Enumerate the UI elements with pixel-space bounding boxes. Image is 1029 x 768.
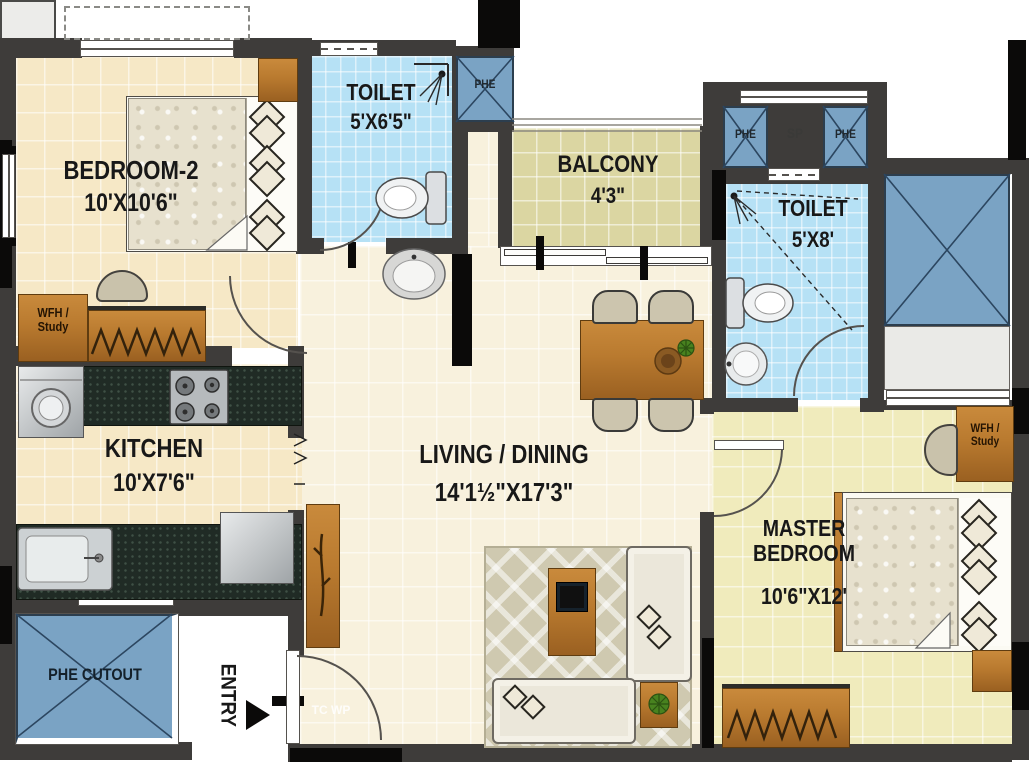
wall-segment-black: [478, 0, 520, 48]
wfh-line: WFH /: [971, 421, 1000, 435]
wall-segment: [234, 38, 312, 58]
wfh-study-label-bedroom2: WFH / Study: [25, 306, 81, 334]
wall-segment: [386, 238, 468, 254]
wall-segment: [0, 742, 192, 760]
phe-shaft-label: PHE: [460, 78, 509, 91]
window-tick: [0, 146, 16, 154]
phe-cutout-label: PHE CUTOUT: [31, 666, 159, 684]
dining-chair: [592, 398, 638, 432]
toilet2-dims: 5'X8': [763, 228, 863, 252]
wall-segment: [288, 598, 304, 656]
wall-segment: [296, 238, 324, 254]
toilet1-label: TOILET: [324, 80, 438, 105]
dining-chair: [592, 290, 638, 324]
kitchen-dims: 10'X7'6": [71, 470, 238, 497]
wall-segment-black: [1012, 388, 1029, 434]
wall-segment-black: [1012, 642, 1029, 710]
door-tick: [348, 242, 356, 268]
foyer-cabinet: [306, 504, 340, 648]
watermark-text: TC WP: [296, 704, 366, 717]
sliding-panel: [606, 257, 708, 264]
wall-segment: [498, 128, 512, 248]
wall-segment: [880, 158, 1012, 174]
master-label: MASTER BEDROOM: [729, 516, 879, 566]
balcony-dims: 4'3": [537, 184, 680, 208]
wall-segment-black: [702, 638, 714, 748]
toilet2-label: TOILET: [763, 196, 863, 221]
toilet1-dims: 5'X6'5": [324, 110, 438, 134]
bedroom2-wardrobe: [88, 310, 206, 362]
wfh-line: Study: [38, 319, 69, 334]
master-bedside-table: [972, 650, 1012, 692]
door-tick: [536, 236, 544, 270]
kitchen-counter-top: [58, 366, 302, 426]
wall-segment: [0, 38, 82, 58]
sliding-panel: [504, 249, 606, 256]
living-dims: 14'1½"X17'3": [399, 478, 610, 506]
kitchen-label: KITCHEN: [71, 434, 238, 462]
bedroom2-bedside-table: [258, 58, 298, 102]
master-dims: 10'6"X12': [729, 584, 879, 609]
entry-label: ENTRY: [192, 684, 236, 707]
bedroom2-label: BEDROOM-2: [40, 156, 222, 184]
wall-segment-black: [452, 254, 472, 366]
wfh-line: WFH /: [37, 305, 68, 320]
floor-plan: BEDROOM-2 10'X10'6" TOILET 5'X6'5" BALCO…: [0, 0, 1029, 768]
duct-shaft-right: [884, 174, 1010, 326]
plant-side-table: [640, 682, 678, 728]
living-label: LIVING / DINING: [399, 440, 610, 468]
window-tick: [0, 238, 16, 246]
wall-segment: [700, 398, 714, 414]
master-wardrobe: [722, 688, 850, 748]
wall-segment: [868, 174, 884, 408]
wall-segment: [712, 398, 798, 412]
entry-door-leaf: [286, 650, 300, 744]
window-projection-dashed: [64, 6, 250, 40]
phe-shaft-label: PHE: [726, 128, 764, 141]
entry-arrow-icon: [246, 700, 270, 730]
wall-segment: [296, 56, 312, 242]
entry-text: ENTRY: [216, 664, 239, 727]
wall-segment-black: [290, 748, 402, 762]
wfh-line: Study: [971, 434, 999, 448]
wall-segment-black: [0, 566, 12, 644]
dining-chair: [648, 290, 694, 324]
bedroom2-dims: 10'X10'6": [49, 190, 214, 217]
shaft-block-window: [740, 90, 868, 104]
refrigerator: [220, 512, 294, 584]
washing-machine: [18, 366, 84, 438]
phe-shaft-label: PHE: [826, 128, 864, 141]
utility-ledge: [884, 326, 1010, 390]
bedroom2-side-window: [2, 154, 15, 238]
master-door-leaf: [714, 440, 784, 450]
dining-table: [580, 320, 704, 400]
balcony-label: BALCONY: [537, 152, 680, 178]
toilet1-vent-window: [320, 42, 378, 56]
sp-shaft-label: SP: [773, 126, 817, 141]
dining-chair: [648, 398, 694, 432]
wfh-study-label-master: WFH / Study: [960, 422, 1009, 448]
master-window: [886, 390, 1010, 406]
tv: [556, 582, 588, 612]
sp-vent-window: [768, 168, 820, 181]
wall-segment-black: [712, 170, 726, 240]
door-tick: [640, 246, 648, 280]
wall-segment: [860, 398, 884, 412]
bedroom2-window: [80, 40, 234, 57]
wall-segment-black: [1008, 40, 1026, 160]
